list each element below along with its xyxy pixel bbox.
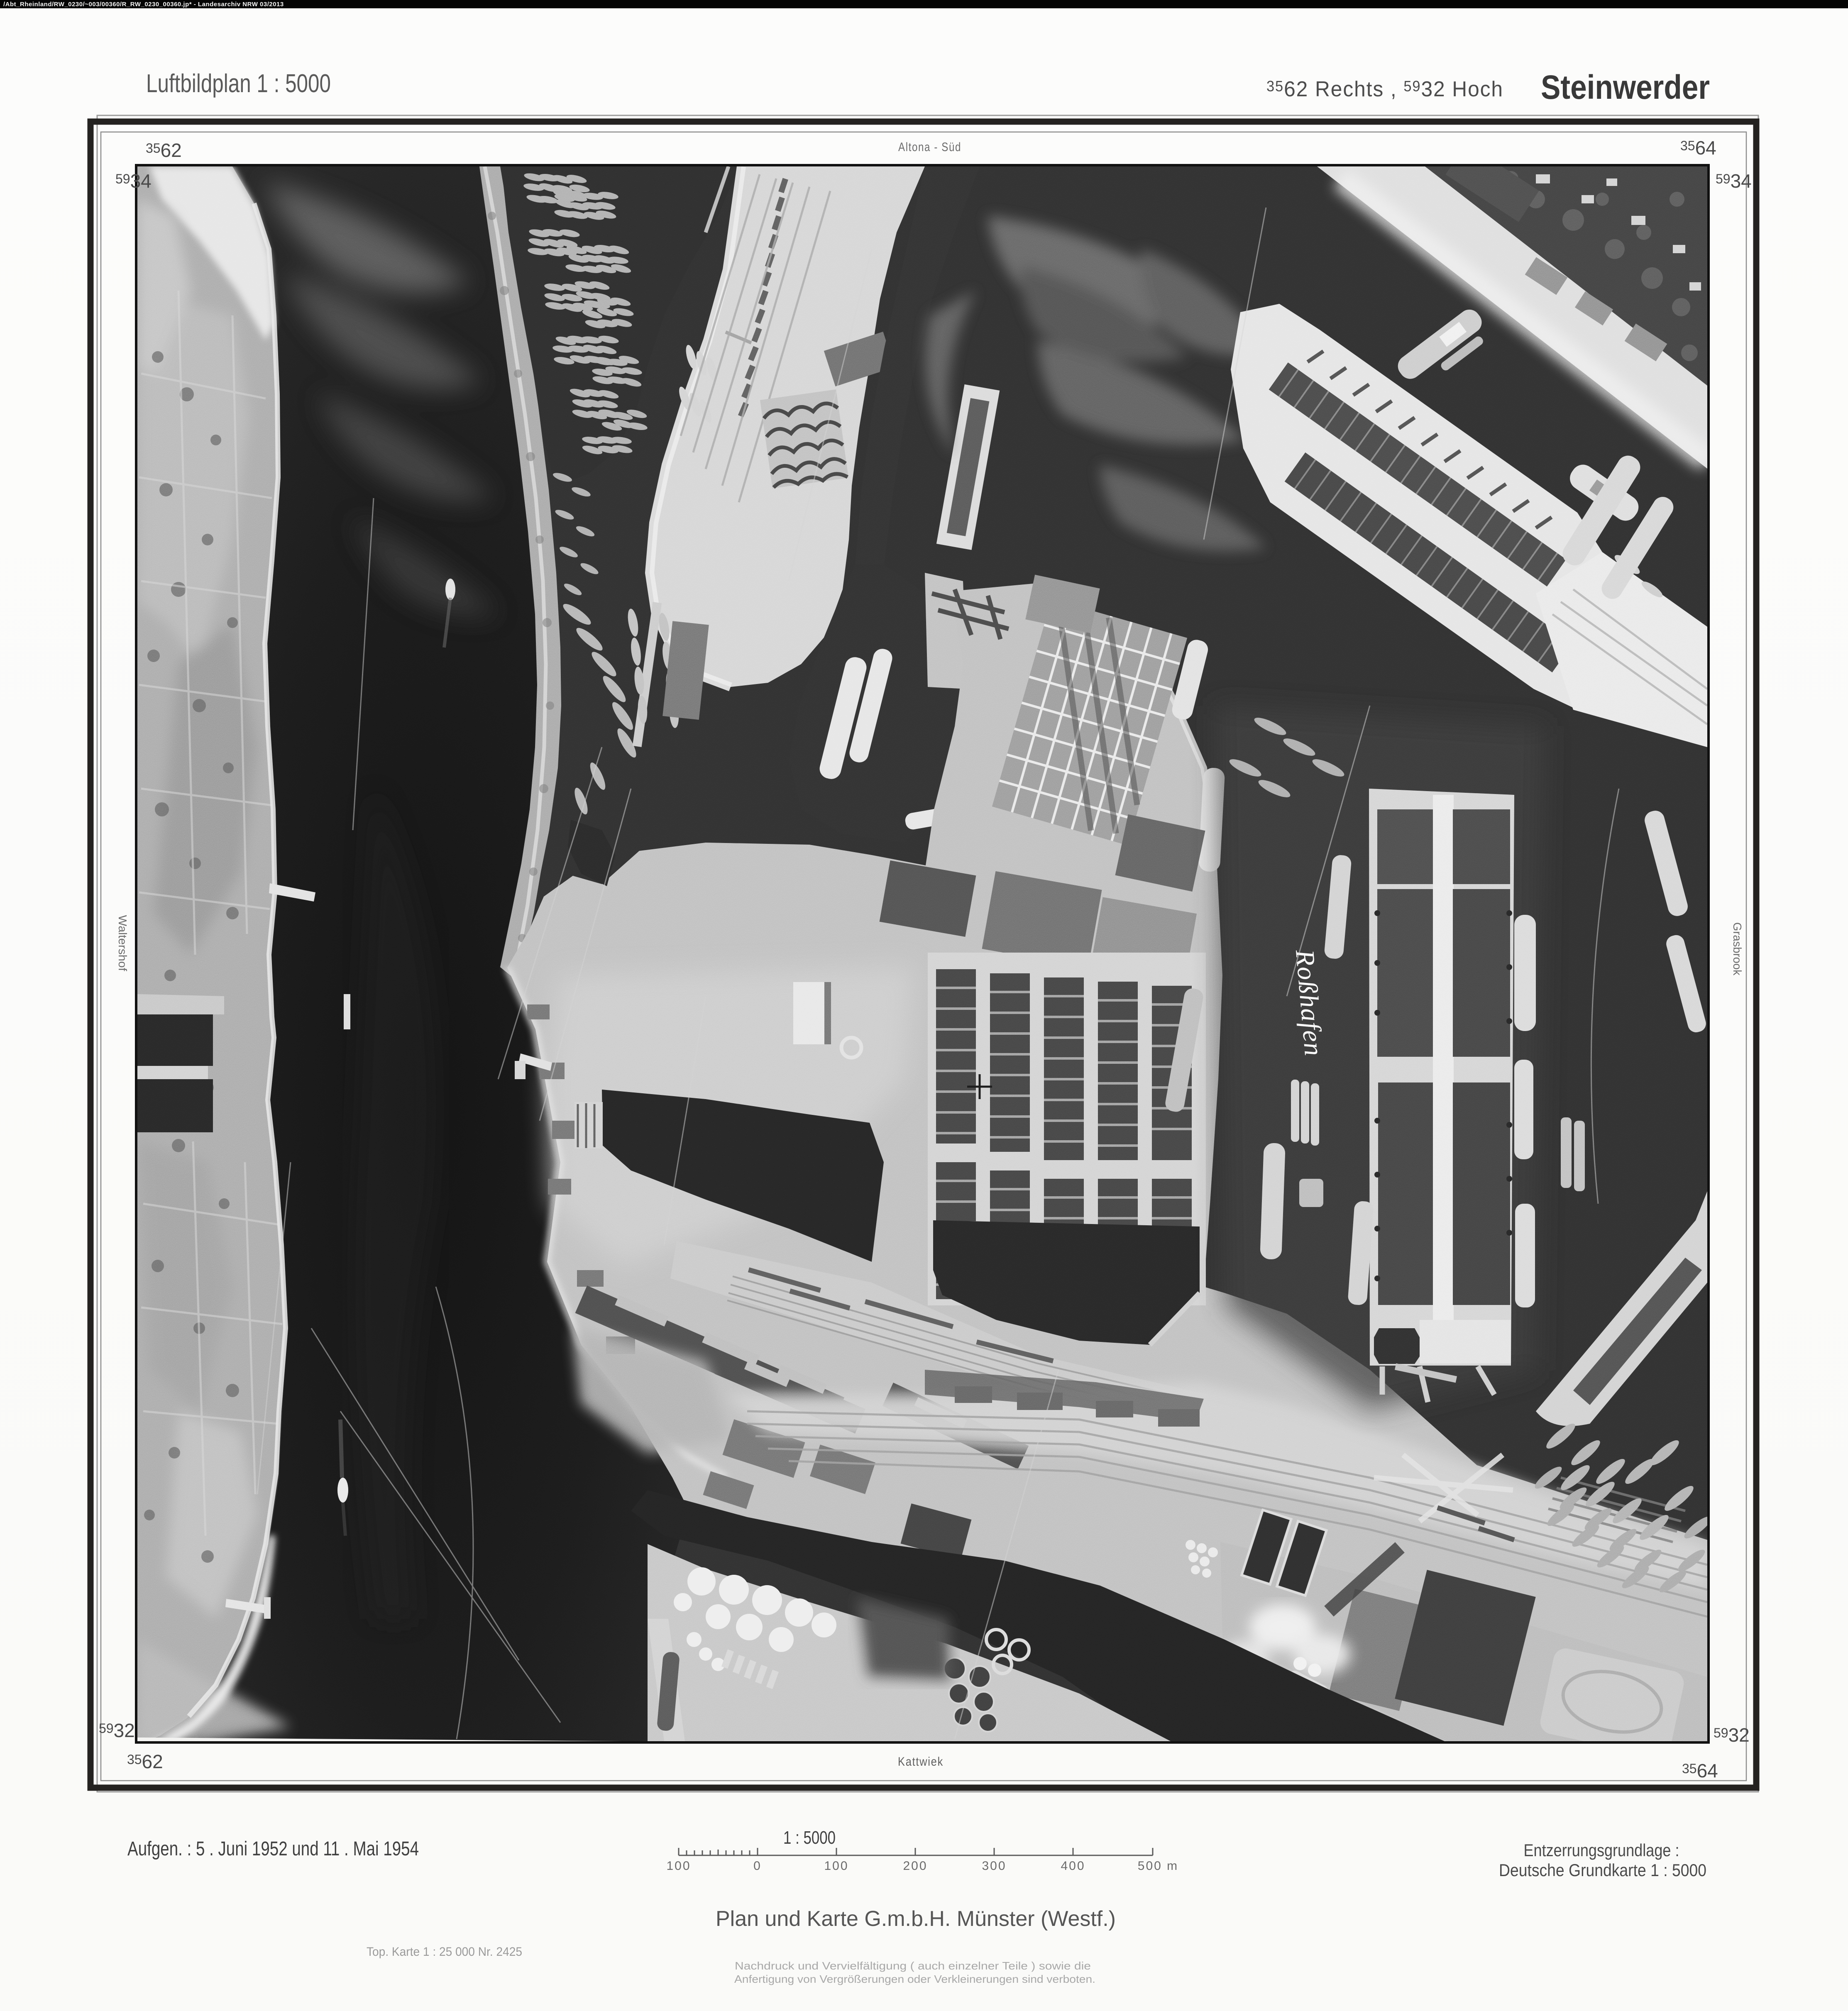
svg-text:Top. Karte 1 : 25 000 Nr. 242: Top. Karte 1 : 25 000 Nr. 2425 — [367, 1945, 522, 1959]
svg-text:400: 400 — [1061, 1859, 1085, 1873]
svg-text:Nachdruck und Vervielfältigu: Nachdruck und Vervielfältigung ( auch ei… — [735, 1960, 1091, 1972]
svg-text:Plan und Karte G.m.b.H. Münst: Plan und Karte G.m.b.H. Münster (Westf.) — [716, 1907, 1116, 1931]
svg-text:300: 300 — [982, 1859, 1006, 1873]
svg-text:200: 200 — [903, 1859, 927, 1873]
svg-text:Aufgen. : 5 . Juni 1952 und 1: Aufgen. : 5 . Juni 1952 und 11 . Mai 195… — [127, 1838, 419, 1860]
svg-text:Steinwerder: Steinwerder — [1541, 68, 1710, 106]
svg-text:Luftbildplan 1 : 5000: Luftbildplan 1 : 5000 — [146, 69, 331, 98]
svg-text:Altona - Süd: Altona - Süd — [898, 140, 961, 154]
svg-text:Grasbrook: Grasbrook — [1731, 922, 1744, 976]
svg-text:Anfertigung von Vergrößerungen: Anfertigung von Vergrößerungen oder Verk… — [734, 1973, 1095, 1985]
svg-text:Deutsche Grundkarte 1 : 5000: Deutsche Grundkarte 1 : 5000 — [1499, 1860, 1706, 1880]
svg-text:3562 Rechts , 5932 Hoch: 3562 Rechts , 5932 Hoch — [1266, 77, 1503, 101]
svg-text:Kattwiek: Kattwiek — [898, 1755, 944, 1769]
svg-text:0: 0 — [753, 1859, 762, 1873]
svg-text:Entzerrungsgrundlage :: Entzerrungsgrundlage : — [1524, 1840, 1679, 1860]
svg-text:1 : 5000: 1 : 5000 — [783, 1828, 836, 1848]
svg-text:500 m: 500 m — [1138, 1859, 1178, 1873]
svg-text:100: 100 — [666, 1859, 691, 1873]
svg-text:Waltershof: Waltershof — [116, 915, 129, 971]
svg-text:/Abt_Rheinland/RW_0230/~003/00: /Abt_Rheinland/RW_0230/~003/00360/R_RW_0… — [3, 1, 284, 8]
svg-text:100: 100 — [824, 1859, 848, 1873]
